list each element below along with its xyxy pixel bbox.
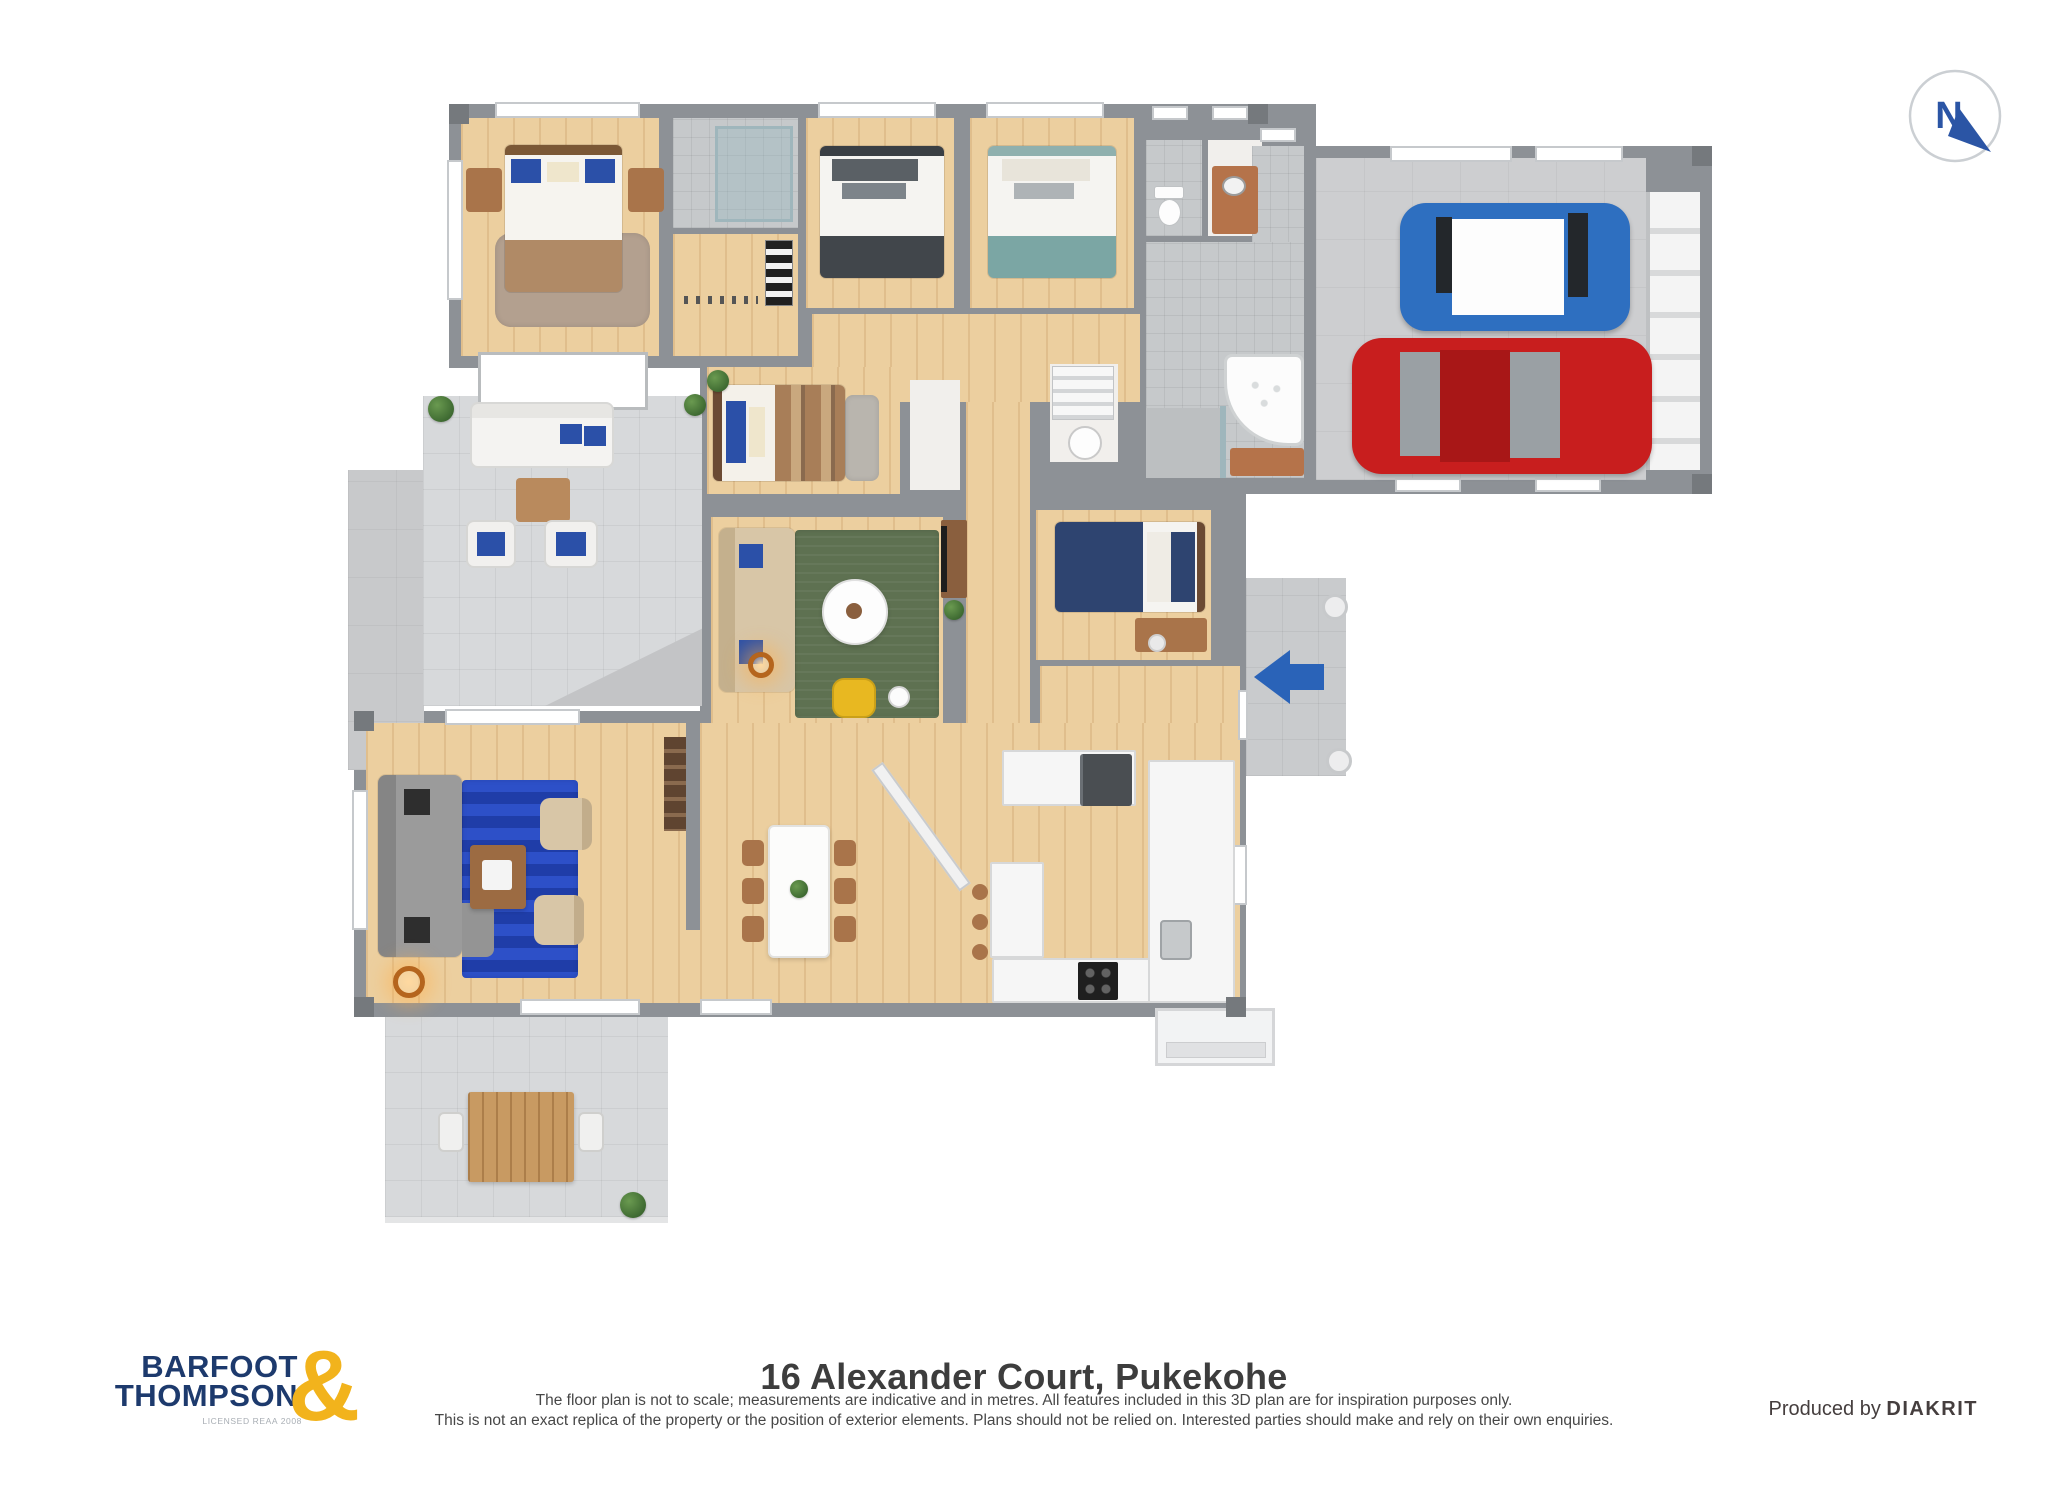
patio-bottom-plant xyxy=(620,1192,646,1218)
corner-cap-6 xyxy=(1226,997,1246,1017)
family-floor-lamp xyxy=(748,652,774,678)
produced-by-label: Produced by xyxy=(1769,1398,1881,1420)
lounge-armchair-1 xyxy=(540,798,592,850)
window-lounge-left xyxy=(352,790,368,930)
yellow-armchair xyxy=(832,678,876,718)
dining-chair-l3 xyxy=(742,916,764,942)
wardrobe-rail xyxy=(684,296,758,304)
kitchen-fridge xyxy=(1080,754,1132,806)
dining-chair-l1 xyxy=(742,840,764,866)
kitchen-right-counter xyxy=(1148,760,1235,1003)
corner-cap-2 xyxy=(1692,146,1712,166)
ensuite-shower xyxy=(715,126,793,222)
bedroom-5-desk xyxy=(1135,618,1207,652)
window-garage-top-1 xyxy=(1390,146,1512,162)
entry-arrow-head xyxy=(1254,650,1290,704)
bathtub-jets xyxy=(1248,378,1284,414)
window-bath-top xyxy=(1260,128,1296,142)
outdoor-chair-2 xyxy=(544,520,598,568)
compass-icon: N xyxy=(1905,66,2005,166)
porch-pillar-bottom xyxy=(1326,748,1352,774)
kitchen-peninsula xyxy=(990,862,1044,958)
disclaimer-line-2: This is not an exact replica of the prop… xyxy=(0,1412,2048,1430)
dining-centerpiece xyxy=(790,880,808,898)
bedroom-2-bed xyxy=(820,146,944,278)
lounge-sofa-chaise xyxy=(462,903,494,957)
hot-water-cylinder xyxy=(1068,426,1102,460)
bedroom-5-chair xyxy=(1148,634,1166,652)
page: { "compass": { "letter": "N" }, "logo": … xyxy=(0,0,2048,1494)
window-master-top xyxy=(495,102,640,118)
car-red xyxy=(1352,338,1652,474)
dining-chair-r2 xyxy=(834,878,856,904)
corner-cap-4 xyxy=(354,711,374,731)
window-master-left xyxy=(447,160,463,300)
outdoor-dining-chair-1 xyxy=(438,1112,464,1152)
produced-by: Produced by DIAKRIT xyxy=(1769,1398,1978,1421)
outdoor-coffee-table xyxy=(516,478,570,522)
family-table-decor xyxy=(846,603,862,619)
kitchen-sink xyxy=(1160,920,1192,960)
garage-door xyxy=(1646,192,1700,470)
corner-cap-3 xyxy=(1692,474,1712,494)
tv-screen xyxy=(941,526,947,592)
tv-plant xyxy=(944,600,964,620)
kitchen-stool-1 xyxy=(972,884,988,900)
master-nightstand-left xyxy=(466,168,502,212)
porch-pillar-top xyxy=(1322,594,1348,620)
corner-cap-5 xyxy=(354,997,374,1017)
hallway-center xyxy=(966,402,1030,757)
dining-chair-r3 xyxy=(834,916,856,942)
window-laundry-top xyxy=(1212,106,1248,120)
lounge-table-tray xyxy=(482,860,512,890)
toilet-bowl xyxy=(1158,199,1181,226)
north-compass: N xyxy=(1905,66,2005,166)
lounge-sofa xyxy=(378,775,462,957)
lounge-floor-lamp xyxy=(393,966,425,998)
kitchen-stool-3 xyxy=(972,944,988,960)
bedroom-5-bed xyxy=(1055,522,1205,612)
kitchen-bottom-counter xyxy=(992,958,1150,1003)
kitchen-stool-2 xyxy=(972,914,988,930)
bathroom-upper xyxy=(1252,146,1304,246)
linen-shelves xyxy=(1052,366,1114,420)
window-patio-slider-1 xyxy=(520,999,640,1015)
bedroom-3-bed xyxy=(988,146,1116,278)
bedroom-4-plant xyxy=(707,370,729,392)
outdoor-sofa xyxy=(470,402,614,468)
patio-plant-right xyxy=(684,394,706,416)
window-garage-bottom-2 xyxy=(1535,478,1601,492)
toilet-tank xyxy=(1154,186,1184,199)
bathroom-shower-glass xyxy=(1220,406,1226,478)
window-patio-slider-2 xyxy=(700,999,772,1015)
dining-chair-r1 xyxy=(834,840,856,866)
master-bed xyxy=(505,145,622,292)
patio-plant-left xyxy=(428,396,454,422)
wardrobe-organiser xyxy=(765,240,793,306)
bedroom-4-bed xyxy=(713,385,845,481)
outdoor-dining-chair-2 xyxy=(578,1112,604,1152)
outdoor-dining-table xyxy=(468,1092,574,1182)
window-garage-bottom-1 xyxy=(1395,478,1461,492)
entry-door xyxy=(1238,690,1248,740)
floor-plan xyxy=(0,0,2048,1340)
kitchen-stove xyxy=(1078,962,1118,1000)
bathroom-shower xyxy=(1146,408,1222,478)
bedroom-4-rug xyxy=(845,395,879,481)
window-bed3-top xyxy=(986,102,1104,118)
rear-porch-step-edge xyxy=(1166,1042,1266,1058)
disclaimer-line-1: The floor plan is not to scale; measurem… xyxy=(0,1392,2048,1410)
lounge-dining-opening xyxy=(686,930,700,1003)
bathroom-vanity xyxy=(1230,448,1304,476)
corner-cap-7 xyxy=(1248,104,1268,124)
dining-chair-l2 xyxy=(742,878,764,904)
lounge-armchair-2 xyxy=(534,895,584,945)
lounge-bookshelf xyxy=(664,737,686,831)
producer-name: DIAKRIT xyxy=(1886,1398,1978,1420)
entry-arrow-shaft xyxy=(1288,664,1324,690)
car-blue xyxy=(1400,203,1630,331)
window-wc-top xyxy=(1152,106,1188,120)
family-side-table xyxy=(888,686,910,708)
bedroom-4-wardrobe xyxy=(910,380,960,490)
window-bed2-top xyxy=(818,102,936,118)
laundry-tub xyxy=(1222,176,1246,196)
window-lounge-top xyxy=(445,709,580,725)
corner-cap-1 xyxy=(449,104,469,124)
outdoor-chair-1 xyxy=(466,520,516,568)
window-garage-top-2 xyxy=(1535,146,1623,162)
master-nightstand-right xyxy=(628,168,664,212)
